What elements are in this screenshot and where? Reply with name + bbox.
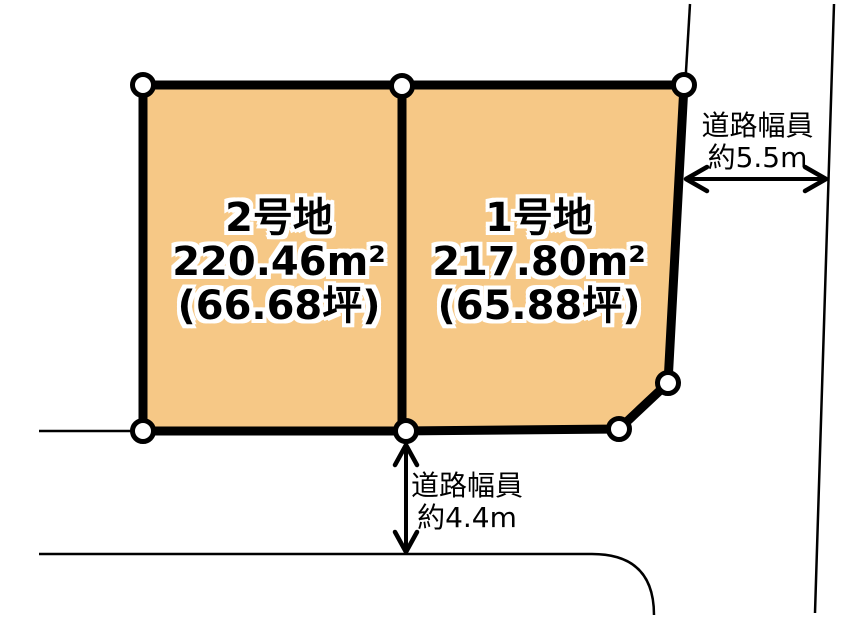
vertex-marker-bottom-right bbox=[609, 419, 630, 440]
vertex-marker-bottom-left bbox=[133, 421, 154, 442]
road-width-note-right: 道路幅員 約5.5m bbox=[695, 110, 820, 174]
plot-1-name: 1号地 bbox=[402, 196, 676, 240]
road-width-note-right-value: 約5.5m bbox=[695, 142, 820, 174]
vertex-marker-chamfer bbox=[658, 373, 679, 394]
vertex-marker-bottom-middle bbox=[396, 421, 417, 442]
vertex-marker-top-right bbox=[674, 75, 695, 96]
plot-2-label: 2号地 220.46m² (66.68坪) bbox=[148, 196, 410, 328]
plot-2-area-tsubo: (66.68坪) bbox=[148, 284, 410, 328]
road-width-note-bottom-label: 道路幅員 bbox=[410, 470, 524, 502]
vertex-marker-top-middle bbox=[392, 76, 413, 97]
road-width-note-bottom: 道路幅員 約4.4m bbox=[410, 470, 524, 534]
plot-2-name: 2号地 bbox=[148, 196, 410, 240]
plot-2-area-m2: 220.46m² bbox=[148, 240, 410, 284]
plot-1-area-m2: 217.80m² bbox=[402, 240, 676, 284]
vertex-marker-top-left bbox=[133, 75, 154, 96]
road-width-note-right-label: 道路幅員 bbox=[695, 110, 820, 142]
land-plot-diagram: 2号地 220.46m² (66.68坪) 1号地 217.80m² (65.8… bbox=[0, 0, 867, 631]
plot-1-area-tsubo: (65.88坪) bbox=[402, 284, 676, 328]
road-edge-bottom-curved bbox=[39, 554, 654, 615]
road-edge-right bbox=[815, 4, 834, 613]
plot-1-label: 1号地 217.80m² (65.88坪) bbox=[402, 196, 676, 328]
road-width-note-bottom-value: 約4.4m bbox=[410, 502, 524, 534]
